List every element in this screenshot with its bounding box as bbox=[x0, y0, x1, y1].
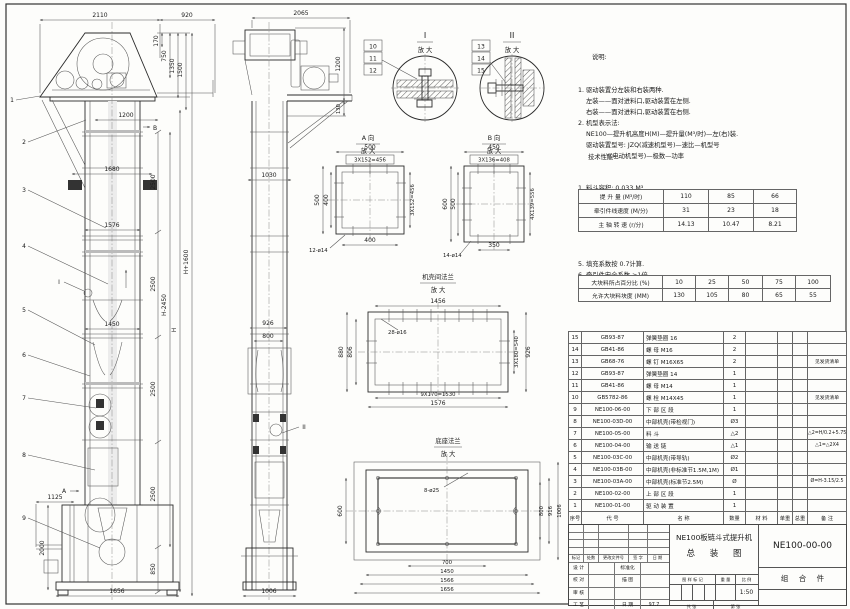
detail-i: I 放 大 10 11 12 bbox=[364, 31, 459, 122]
detail-ii: II 放 大 13 14 15 bbox=[472, 31, 544, 122]
dim-label: 800 bbox=[539, 505, 545, 516]
dim-label: 2000 bbox=[39, 540, 46, 555]
view-title: A 向 bbox=[362, 133, 375, 142]
dim-label: 1200 bbox=[335, 56, 342, 71]
dim-label: 450 bbox=[488, 144, 500, 151]
drawing-sheet: 2110 920 170 750 1350 1500 1200 1680 157… bbox=[0, 0, 850, 609]
dim-label: H bbox=[171, 328, 178, 333]
dim-label: 1125 bbox=[47, 494, 62, 501]
dim-label: 1200 bbox=[118, 112, 133, 119]
detail-subtitle: 放 大 bbox=[418, 45, 433, 54]
dim-label: 750 bbox=[161, 50, 168, 62]
detail-title: 机壳间法兰 bbox=[422, 272, 453, 281]
dim-label: 1350 bbox=[169, 58, 176, 73]
dim-label: 2110 bbox=[92, 12, 107, 19]
leader-number: 4 bbox=[22, 243, 26, 250]
dim-label: 2500 bbox=[150, 174, 157, 189]
detail-title: I bbox=[424, 31, 426, 40]
dim-label: 1566 bbox=[440, 578, 454, 584]
detail-subtitle: 放 大 bbox=[441, 449, 456, 458]
detail-subtitle: 放 大 bbox=[431, 285, 446, 294]
view-a: A 向 放 大 500 3X152=456 500 400 3X152=456 … bbox=[309, 133, 416, 254]
dim-label: 400 bbox=[323, 194, 330, 206]
dim-label: 916 bbox=[548, 505, 554, 516]
dim-label: 1680 bbox=[104, 166, 119, 173]
leader-number: 3 bbox=[22, 187, 26, 194]
item-ref: 10 bbox=[369, 44, 377, 51]
view-title: B 向 bbox=[488, 133, 501, 142]
hole-callout: 8-ø25 bbox=[424, 488, 439, 494]
dim-label: 806 bbox=[347, 346, 354, 358]
dim-label: 926 bbox=[262, 320, 274, 327]
dim-label: 1456 bbox=[430, 298, 445, 305]
drawing-canvas: 2110 920 170 750 1350 1500 1200 1680 157… bbox=[0, 0, 850, 609]
dim-label: 1656 bbox=[109, 588, 124, 595]
dim-label: 926 bbox=[525, 346, 532, 358]
dim-label: 2500 bbox=[150, 381, 157, 396]
dim-label: 600 bbox=[442, 198, 449, 210]
dim-label: 850 bbox=[150, 563, 157, 575]
item-ref: 11 bbox=[369, 56, 377, 63]
dim-label: 3X180=540 bbox=[514, 336, 520, 368]
dim-label: H+1600 bbox=[183, 249, 190, 274]
item-ref: 15 bbox=[477, 68, 485, 75]
dim-label: 920 bbox=[181, 12, 193, 19]
leader-number: 8 bbox=[22, 452, 26, 459]
front-view: 2110 920 170 750 1350 1500 1200 1680 157… bbox=[10, 12, 215, 600]
item-ref: 12 bbox=[369, 68, 377, 75]
dim-label: 3X136=408 bbox=[478, 158, 510, 164]
leader-number: 6 bbox=[22, 352, 26, 359]
dim-label: 4X139=556 bbox=[530, 188, 536, 220]
dim-label: 800 bbox=[262, 333, 274, 340]
dim-label: 500 bbox=[314, 194, 321, 206]
item-ref: 13 bbox=[477, 44, 485, 51]
view-a-marker: A bbox=[62, 488, 67, 495]
side-view: II 2065 1200 130 1030 926 800 1006 bbox=[233, 10, 352, 600]
dim-label: 1450 bbox=[104, 321, 119, 328]
dim-label: 9X170=1530 bbox=[420, 392, 456, 398]
dim-label: 1576 bbox=[430, 400, 445, 407]
leader-number: 2 bbox=[22, 139, 26, 146]
dim-label: 3X152=456 bbox=[354, 158, 386, 164]
detail-ii-marker: II bbox=[302, 424, 306, 431]
leader-number: 1 bbox=[10, 97, 14, 104]
dim-label: 1576 bbox=[104, 222, 119, 229]
dim-label: 700 bbox=[442, 560, 453, 566]
hole-callout: 28-ø16 bbox=[388, 330, 407, 336]
dim-label: 400 bbox=[364, 237, 376, 244]
dim-label: 1656 bbox=[440, 587, 454, 593]
dim-label: 350 bbox=[488, 242, 500, 249]
item-ref: 14 bbox=[477, 56, 485, 63]
dim-label: 500 bbox=[450, 198, 457, 210]
leader-number: 9 bbox=[22, 515, 26, 522]
dim-label: 1450 bbox=[440, 569, 454, 575]
dim-label: 600 bbox=[337, 505, 344, 517]
hole-callout: 14-ø14 bbox=[443, 253, 462, 259]
view-b: B 向 放 大 450 3X136=408 600 500 4X139=556 … bbox=[442, 133, 536, 259]
dim-label: 170 bbox=[153, 35, 160, 47]
dim-label: 1500 bbox=[177, 62, 184, 77]
view-b-marker: B bbox=[153, 125, 157, 132]
dim-label: 3X152=456 bbox=[410, 184, 416, 216]
dim-label: 130 bbox=[336, 103, 342, 114]
leader-number: 5 bbox=[22, 307, 26, 314]
detail-title: II bbox=[510, 31, 515, 40]
dim-label: 2500 bbox=[150, 486, 157, 501]
dim-label: 500 bbox=[364, 144, 376, 151]
flange-detail: 机壳间法兰 放 大 1456 28-ø16 880 806 3X180=540 … bbox=[338, 272, 532, 407]
dim-label: 2500 bbox=[150, 276, 157, 291]
dim-label: 2065 bbox=[293, 10, 308, 17]
detail-i-marker: I bbox=[58, 279, 60, 286]
dim-label: 1006 bbox=[261, 588, 276, 595]
detail-title: 底座法兰 bbox=[435, 436, 460, 445]
dim-label: 1030 bbox=[261, 172, 276, 179]
dim-label: H-2450 bbox=[161, 294, 168, 316]
leader-number: 7 bbox=[22, 395, 26, 402]
dim-label: 1006 bbox=[557, 504, 563, 518]
detail-subtitle: 放 大 bbox=[505, 45, 520, 54]
base-detail: 底座法兰 放 大 8-ø25 600 800 916 1006 700 1450… bbox=[337, 436, 563, 593]
hole-callout: 12-ø14 bbox=[309, 248, 328, 254]
dim-label: 880 bbox=[338, 346, 345, 358]
